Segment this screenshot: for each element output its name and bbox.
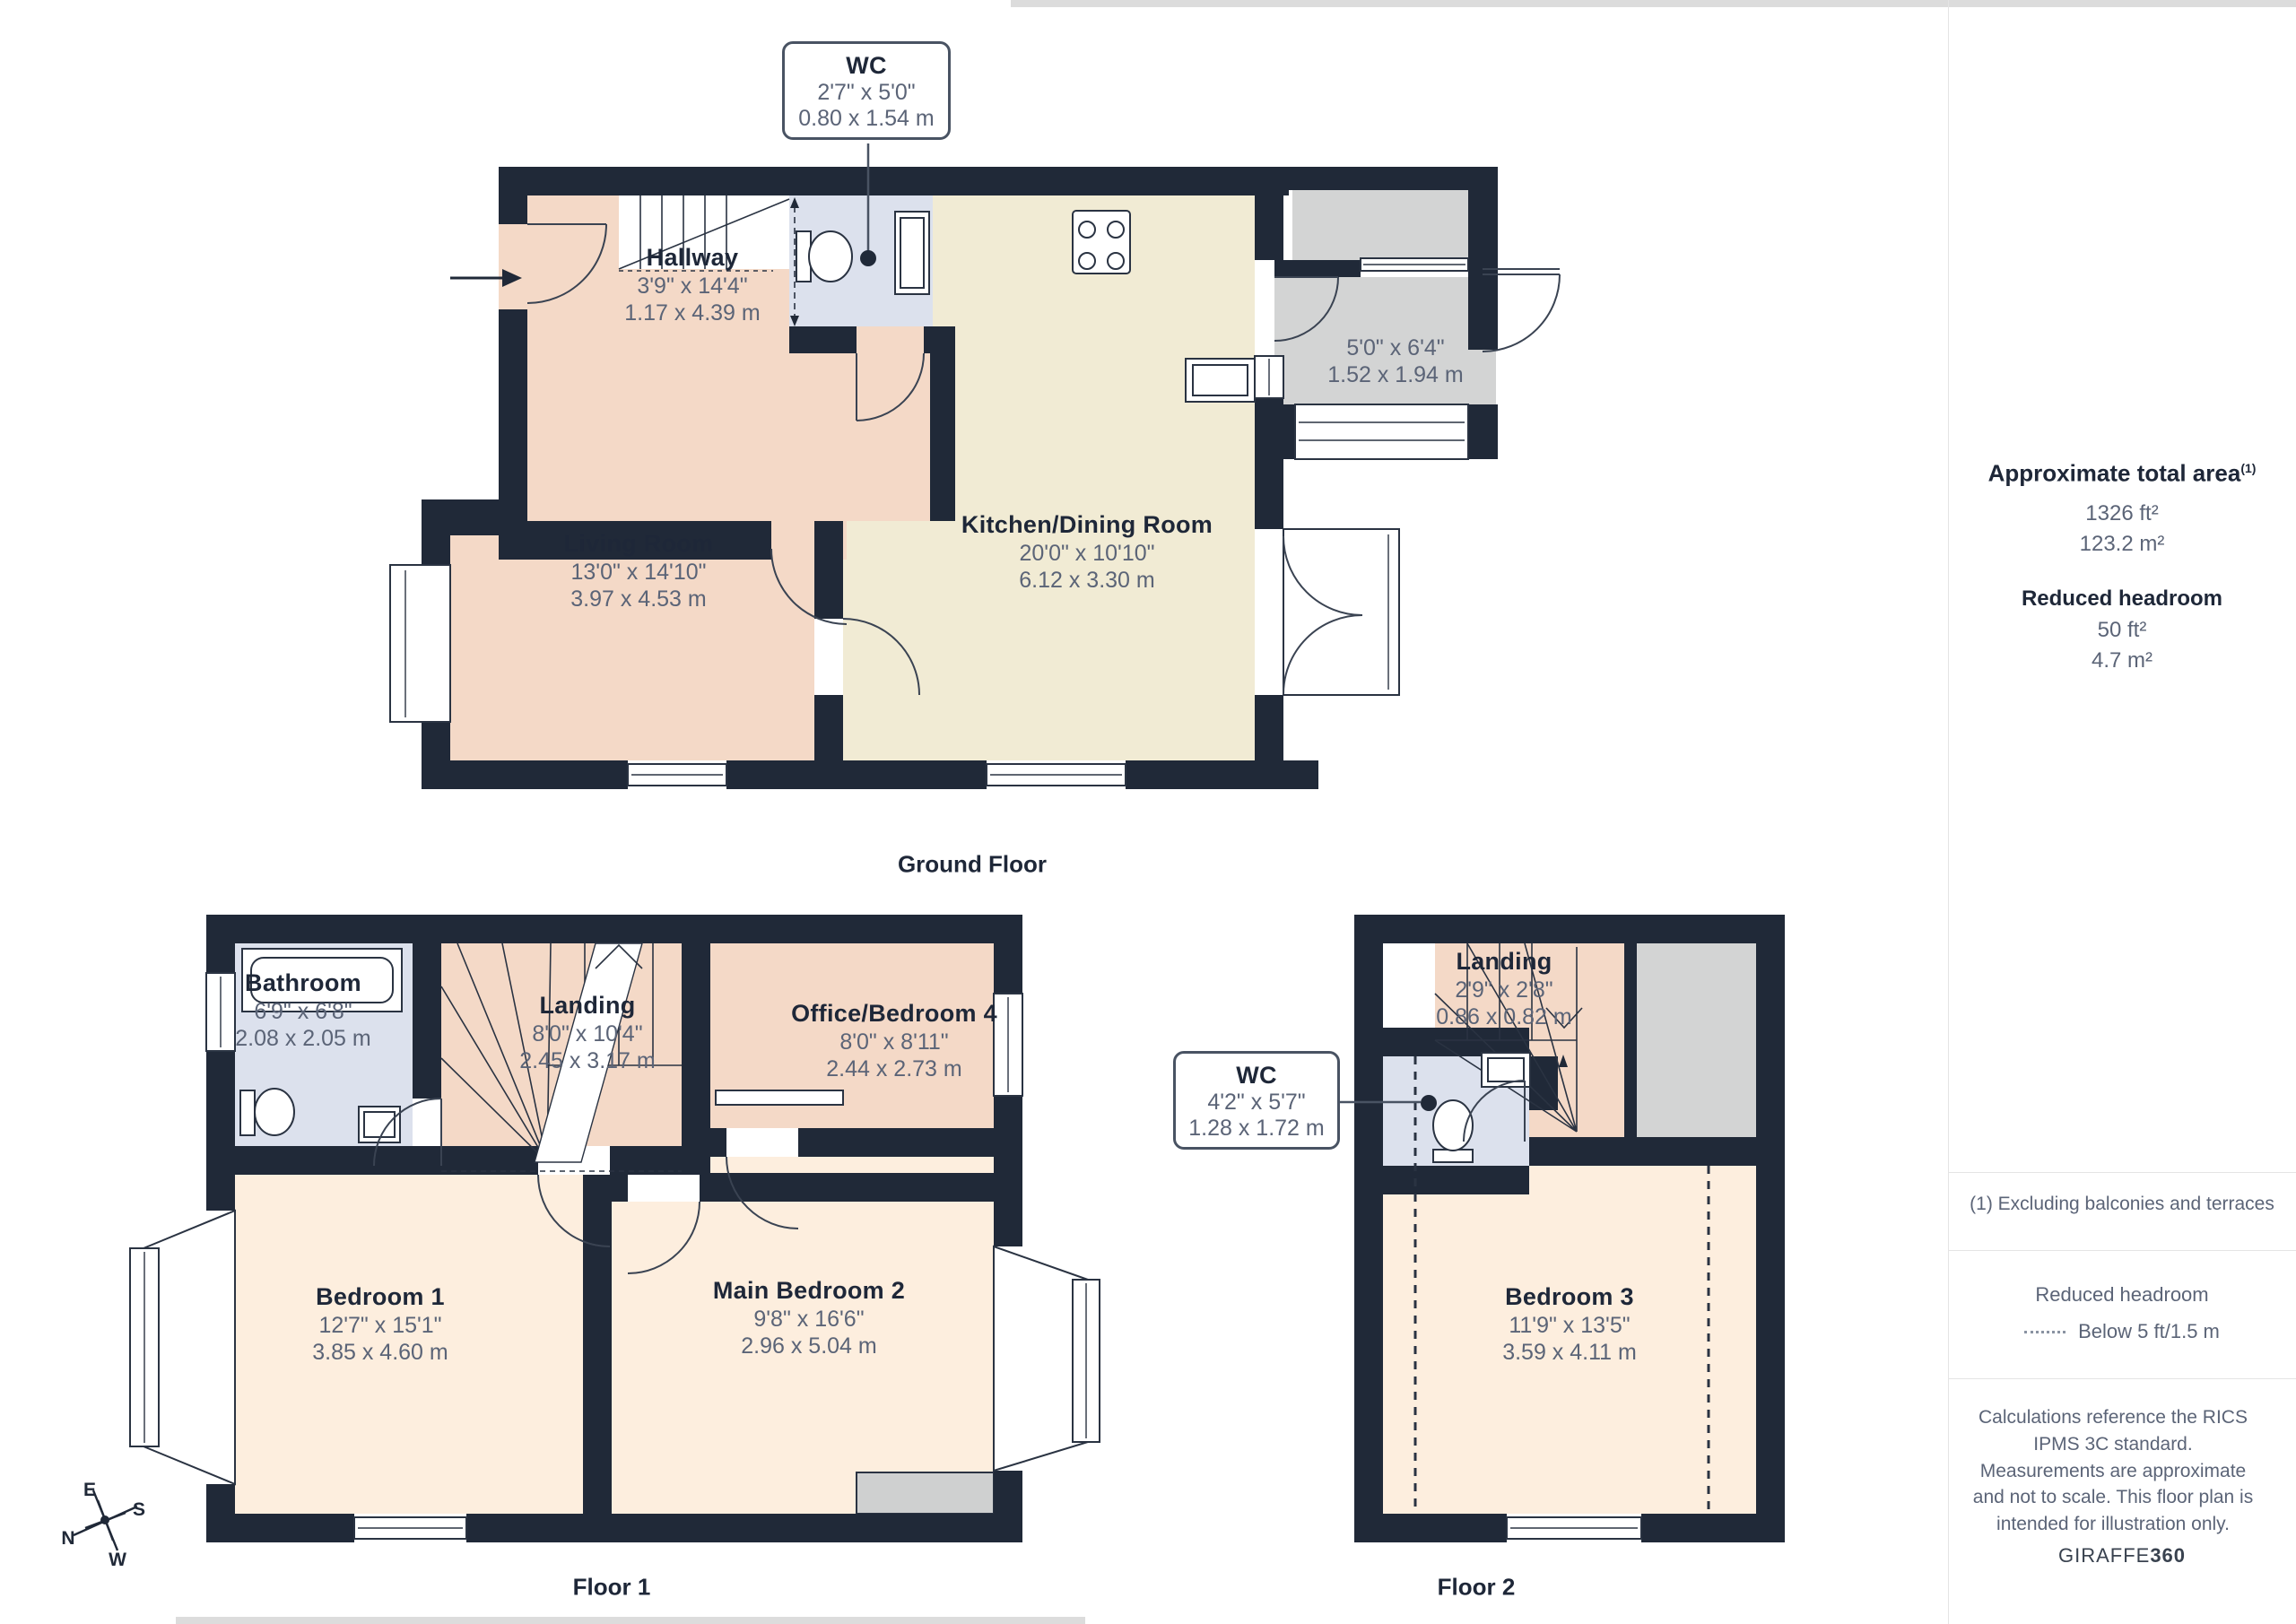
reduced-headroom-m: 4.7 m²: [1948, 648, 2296, 673]
callout-wc-floor2: WC 4'2" x 5'7" 1.28 x 1.72 m: [1173, 1051, 1340, 1150]
disclaimer-text: Calculations reference the RICS IPMS 3C …: [1970, 1404, 2257, 1538]
room-label-hallway: Hallway 3'9" x 14'4" 1.17 x 4.39 m: [624, 242, 760, 326]
sidebar-divider-2: [1948, 1250, 2296, 1251]
sidebar-divider-3: [1948, 1378, 2296, 1379]
page-edge-bottom: [176, 1617, 1085, 1624]
caption-ground-floor: Ground Floor: [898, 851, 1047, 879]
room-label-living: Living Room 13'0" x 14'10" 3.97 x 4.53 m: [564, 528, 714, 612]
toilet-icon: [240, 1090, 255, 1135]
room-label-kitchen: Kitchen/Dining Room 20'0" x 10'10" 6.12 …: [961, 509, 1213, 594]
room-label-porch: 5'0" x 6'4" 1.52 x 1.94 m: [1327, 334, 1463, 388]
room-dim-metric: 0.80 x 1.54 m: [790, 106, 943, 132]
brand-bold: 360: [2150, 1544, 2186, 1567]
compass-rose: E S N W: [61, 1480, 145, 1570]
room-label-landing2: Landing 2'9" x 2'8" 0.86 x 0.82 m: [1436, 946, 1571, 1030]
compass-n-label: N: [61, 1528, 74, 1549]
sidebar-divider-vertical: [1948, 0, 1949, 1624]
legend-title: Reduced headroom: [1948, 1283, 2296, 1307]
footnote-marker: (1): [2240, 461, 2256, 475]
balcony-area: [857, 1472, 994, 1514]
compass-w-label: W: [109, 1550, 126, 1570]
compass-e-label: E: [83, 1480, 96, 1500]
dotted-line-swatch: [2024, 1331, 2066, 1333]
legend-row: Below 5 ft/1.5 m: [1948, 1320, 2296, 1343]
room-label-bedroom3: Bedroom 3 11'9" x 13'5" 3.59 x 4.11 m: [1502, 1281, 1637, 1366]
total-area-ft: 1326 ft²: [1948, 501, 2296, 526]
room-label-bedroom2: Main Bedroom 2 9'8" x 16'6" 2.96 x 5.04 …: [713, 1275, 905, 1359]
room-label-landing1: Landing 8'0" x 10'4" 2.45 x 3.17 m: [519, 990, 655, 1074]
brand-logo: GIRAFFE360: [1948, 1544, 2296, 1568]
sidebar-divider-1: [1948, 1172, 2296, 1173]
reduced-headroom-area: [1637, 943, 1756, 1137]
toilet-icon: [1433, 1150, 1473, 1162]
reduced-headroom-ft: 50 ft²: [1948, 618, 2296, 643]
callout-anchor-dot: [1421, 1095, 1437, 1111]
room-label-bedroom1: Bedroom 1 12'7" x 15'1" 3.85 x 4.60 m: [312, 1281, 448, 1366]
callout-anchor-dot: [860, 250, 876, 266]
reduced-headroom-title: Reduced headroom: [1948, 586, 2296, 612]
callout-wc-ground: WC 2'7" x 5'0" 0.80 x 1.54 m: [782, 41, 951, 140]
floorplan-drawing: E S N W: [0, 0, 2296, 1624]
legend-value: Below 5 ft/1.5 m: [2078, 1320, 2220, 1343]
total-area-m: 123.2 m²: [1948, 532, 2296, 557]
room-name: WC: [790, 51, 943, 80]
compass-s-label: S: [133, 1499, 145, 1520]
desk-icon: [716, 1090, 843, 1105]
room-dim-imperial: 2'7" x 5'0": [790, 80, 943, 106]
total-area-title: Approximate total area(1): [1948, 460, 2296, 488]
footnote-text: (1) Excluding balconies and terraces: [1948, 1194, 2296, 1215]
ground-floor-plan: [390, 143, 1560, 789]
porch-upper-area: [1292, 190, 1468, 262]
brand-regular: GIRAFFE: [2058, 1544, 2150, 1567]
floorplan-page: E S N W WC 2'7" x 5'0" 0.80 x 1.54 m Hal…: [0, 0, 2296, 1624]
page-edge-top: [1011, 0, 2296, 7]
caption-floor1: Floor 1: [573, 1574, 651, 1602]
caption-floor2: Floor 2: [1438, 1574, 1516, 1602]
room-label-office: Office/Bedroom 4 8'0" x 8'11" 2.44 x 2.7…: [791, 998, 997, 1082]
room-label-bathroom: Bathroom 6'9" x 6'8" 2.08 x 2.05 m: [235, 968, 370, 1052]
